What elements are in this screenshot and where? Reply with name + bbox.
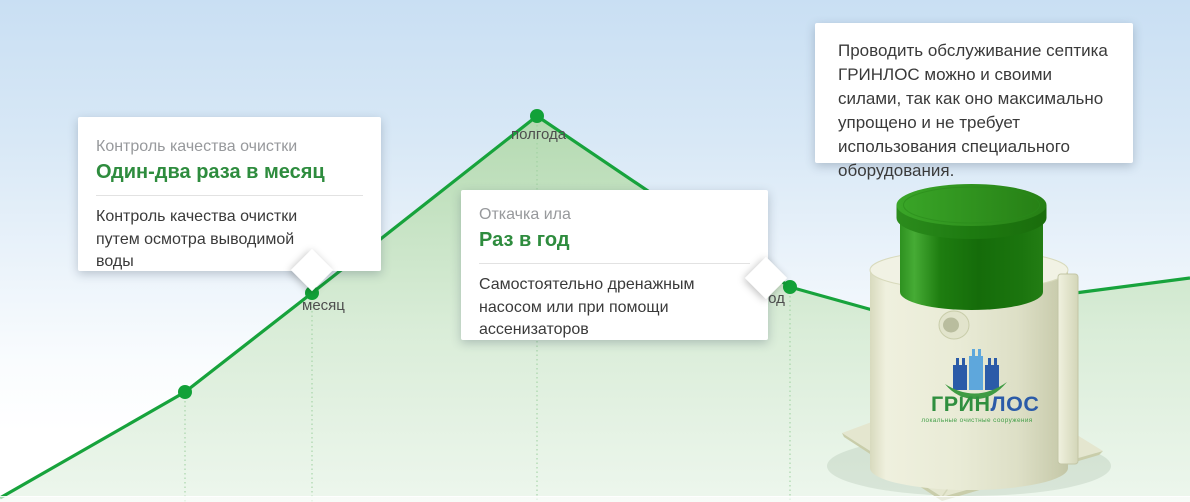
card-quality-frequency: Один-два раза в месяц	[96, 161, 363, 196]
tank-lid	[897, 184, 1047, 310]
card-quality-control: Контроль качества очистки Один-два раза …	[78, 117, 381, 271]
brand-name-blue: ЛОС	[991, 392, 1040, 416]
brand-tagline: локальные очистные сооружения	[921, 417, 1032, 424]
card-sludge-pumping: Откачка ила Раз в год Самостоятельно дре…	[461, 190, 768, 340]
card-quality-title: Контроль качества очистки	[96, 138, 363, 156]
tank-side-conduit	[1058, 274, 1078, 464]
milestone-label-half-year: полгода	[511, 126, 566, 143]
bottom-edge-strip	[0, 496, 1190, 502]
maintenance-infographic-banner: месяц полгода год	[0, 0, 1190, 502]
card-quality-description: Контроль качества очистки путем осмотра …	[96, 196, 326, 274]
card-service-note: Проводить обслуживание септика ГРИНЛОС м…	[815, 23, 1133, 163]
card-pumping-frequency: Раз в год	[479, 229, 750, 264]
card-pumping-description: Самостоятельно дренажным насосом или при…	[479, 264, 719, 342]
milestone-label-month: месяц	[302, 297, 345, 314]
brand-name-green: ГРИН	[931, 392, 991, 416]
card-pumping-title: Откачка ила	[479, 206, 750, 224]
svg-text:ГРИНЛОС: ГРИНЛОС	[931, 392, 1039, 416]
tank-inlet-pipe	[939, 311, 969, 339]
septic-tank-illustration: ГРИНЛОС локальные очистные сооружения	[815, 168, 1115, 502]
